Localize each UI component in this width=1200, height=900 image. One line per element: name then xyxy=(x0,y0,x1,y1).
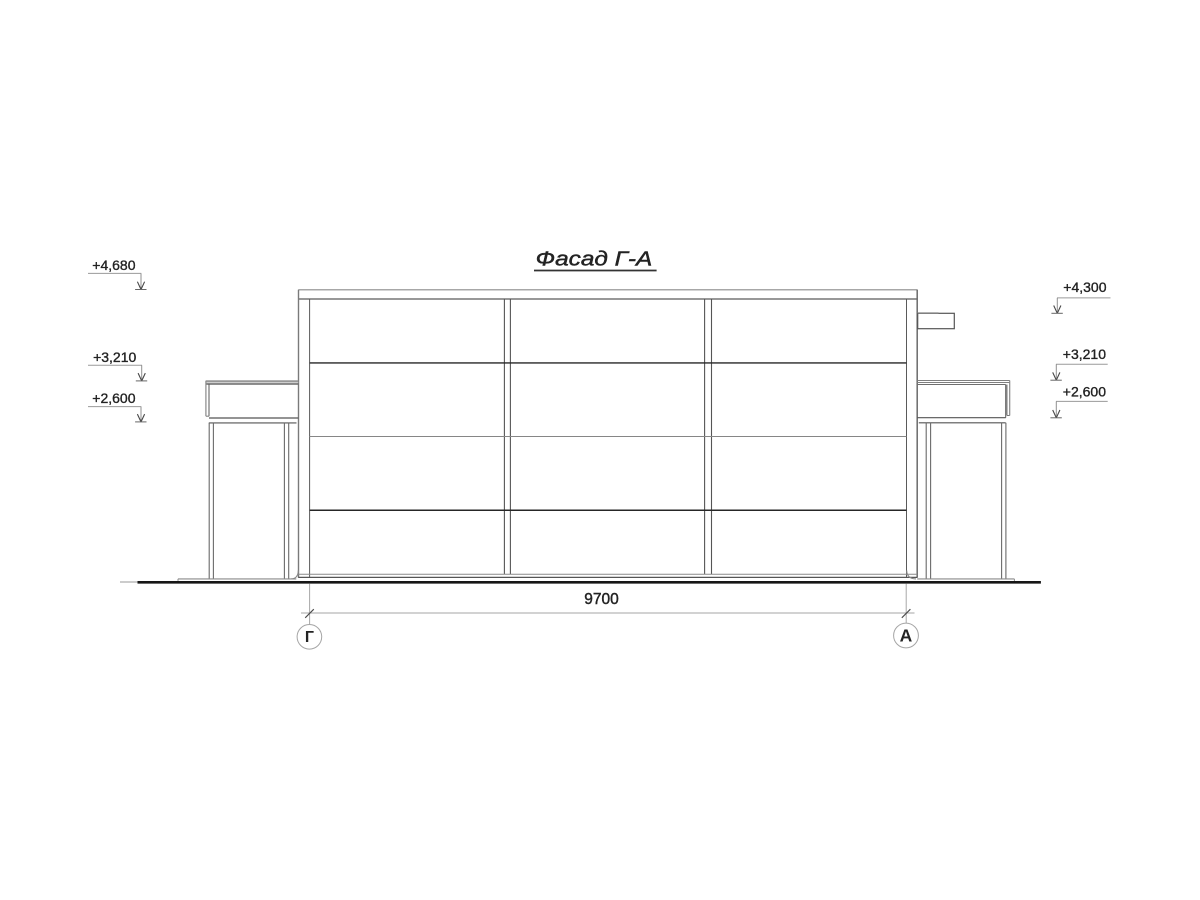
svg-text:+3,210: +3,210 xyxy=(1063,346,1106,362)
svg-text:+2,600: +2,600 xyxy=(92,390,135,406)
svg-text:+3,210: +3,210 xyxy=(93,349,136,365)
svg-text:+4,680: +4,680 xyxy=(92,257,135,273)
svg-text:Фасад Г-А: Фасад Г-А xyxy=(536,248,653,270)
svg-text:А: А xyxy=(900,625,913,645)
svg-text:+2,600: +2,600 xyxy=(1063,384,1106,400)
svg-text:9700: 9700 xyxy=(584,591,619,608)
svg-text:Г: Г xyxy=(305,629,314,646)
svg-text:+4,300: +4,300 xyxy=(1063,279,1106,295)
